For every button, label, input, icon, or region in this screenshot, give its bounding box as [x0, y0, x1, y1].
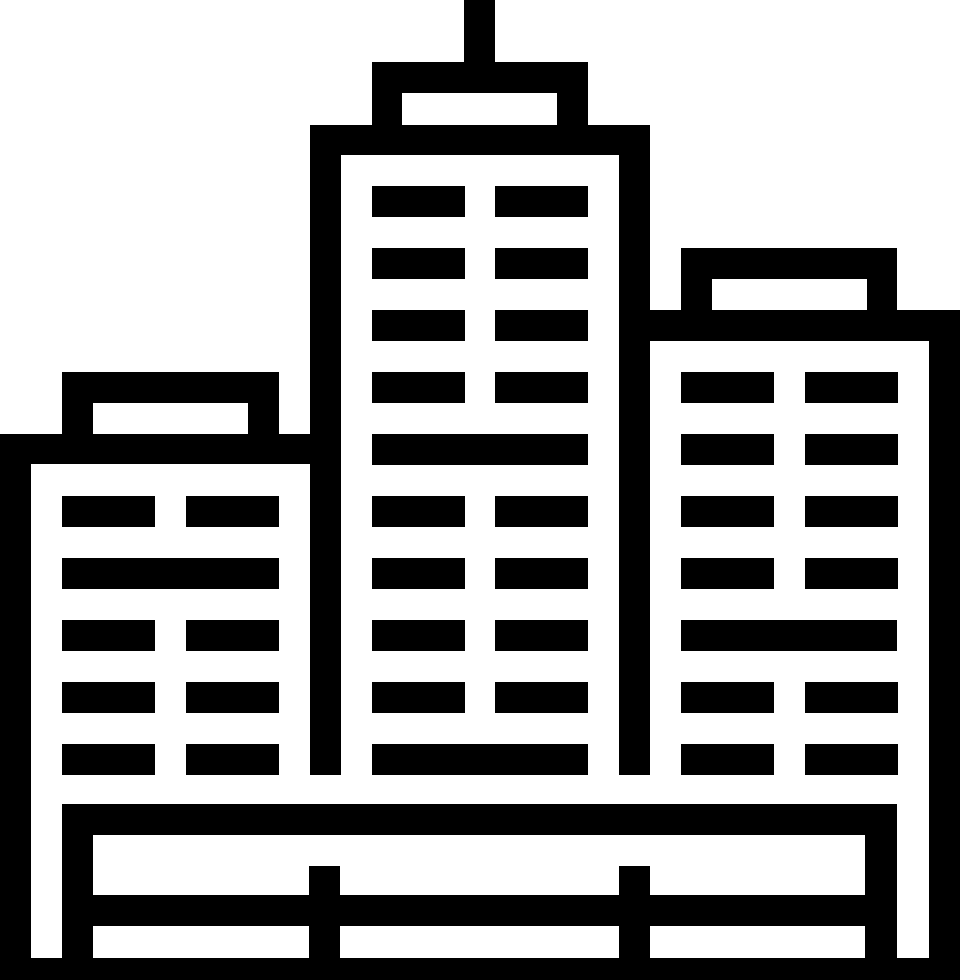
center-tower-wall-left	[310, 125, 341, 775]
left-building-window	[186, 744, 279, 775]
right-building-window	[681, 496, 774, 527]
left-building-window	[186, 620, 279, 651]
right-building-floor-band	[681, 620, 897, 651]
right-building-window	[805, 496, 898, 527]
center-tower-window	[372, 558, 465, 589]
center-tower-window	[372, 310, 465, 341]
left-building-wall	[0, 434, 31, 980]
center-tower-window	[495, 682, 588, 713]
right-building-roof-window	[712, 279, 867, 310]
city-buildings-icon	[0, 0, 960, 980]
center-tower-window	[495, 558, 588, 589]
left-building-window	[186, 496, 279, 527]
base-bottom-bar	[0, 958, 960, 980]
right-building-window	[805, 434, 898, 465]
center-tower-roof-window	[402, 93, 557, 125]
left-building-top-bar	[0, 434, 310, 464]
center-tower-window	[495, 186, 588, 217]
right-building-window	[681, 744, 774, 775]
center-tower-antenna	[464, 0, 495, 63]
right-building-top-bar	[650, 310, 960, 341]
left-building-floor-band	[62, 558, 279, 589]
base-top-rail	[62, 804, 897, 835]
center-tower-window	[372, 620, 465, 651]
right-building-window	[805, 558, 898, 589]
center-tower-floor-band	[372, 434, 588, 465]
center-tower-window	[495, 310, 588, 341]
center-tower-window	[495, 372, 588, 403]
center-tower-top-bar	[310, 125, 650, 155]
right-building-window	[805, 682, 898, 713]
right-building-window	[681, 558, 774, 589]
center-tower-window	[372, 372, 465, 403]
left-building-window	[62, 682, 155, 713]
center-tower-window	[495, 620, 588, 651]
center-tower-floor-band	[372, 744, 588, 775]
center-tower-window	[372, 248, 465, 279]
right-building-window	[681, 682, 774, 713]
left-building-window	[62, 744, 155, 775]
center-tower-window	[495, 496, 588, 527]
right-building-wall	[929, 310, 960, 980]
left-building-window	[186, 682, 279, 713]
right-building-window	[805, 744, 898, 775]
center-tower-window	[372, 496, 465, 527]
left-building-window	[62, 496, 155, 527]
base-middle-rail	[62, 895, 897, 926]
center-tower-window	[495, 248, 588, 279]
right-building-window	[805, 372, 898, 403]
left-building-window	[62, 620, 155, 651]
center-tower-window	[372, 682, 465, 713]
right-building-window	[681, 372, 774, 403]
center-tower-window	[372, 186, 465, 217]
left-building-roof-window	[93, 403, 248, 434]
icon-canvas	[0, 0, 960, 980]
right-building-window	[681, 434, 774, 465]
center-tower-wall-right	[619, 125, 650, 775]
